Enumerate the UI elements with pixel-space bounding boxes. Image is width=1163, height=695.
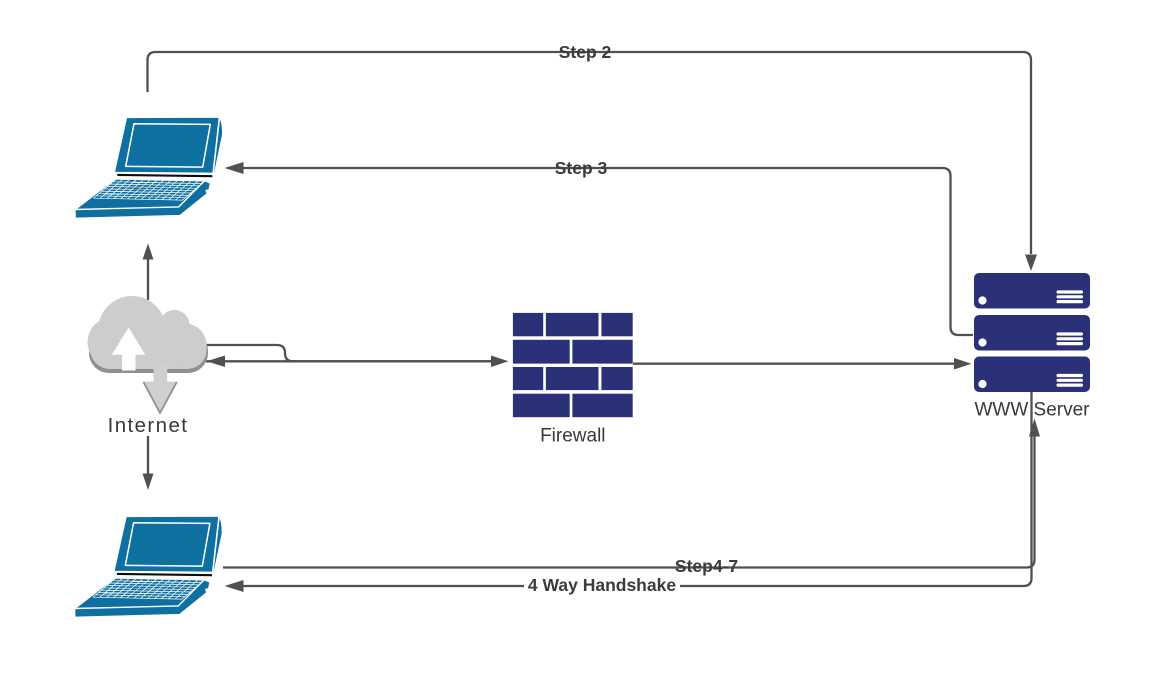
svg-text:WWW Server: WWW Server <box>974 400 1090 421</box>
svg-text:Firewall: Firewall <box>540 426 605 447</box>
svg-text:4 Way Handshake: 4 Way Handshake <box>528 575 676 595</box>
svg-text:Step 3: Step 3 <box>555 158 608 178</box>
svg-text:Internet: Internet <box>108 414 189 437</box>
svg-text:Step 2: Step 2 <box>559 42 612 62</box>
svg-text:Step4-7: Step4-7 <box>675 556 738 576</box>
